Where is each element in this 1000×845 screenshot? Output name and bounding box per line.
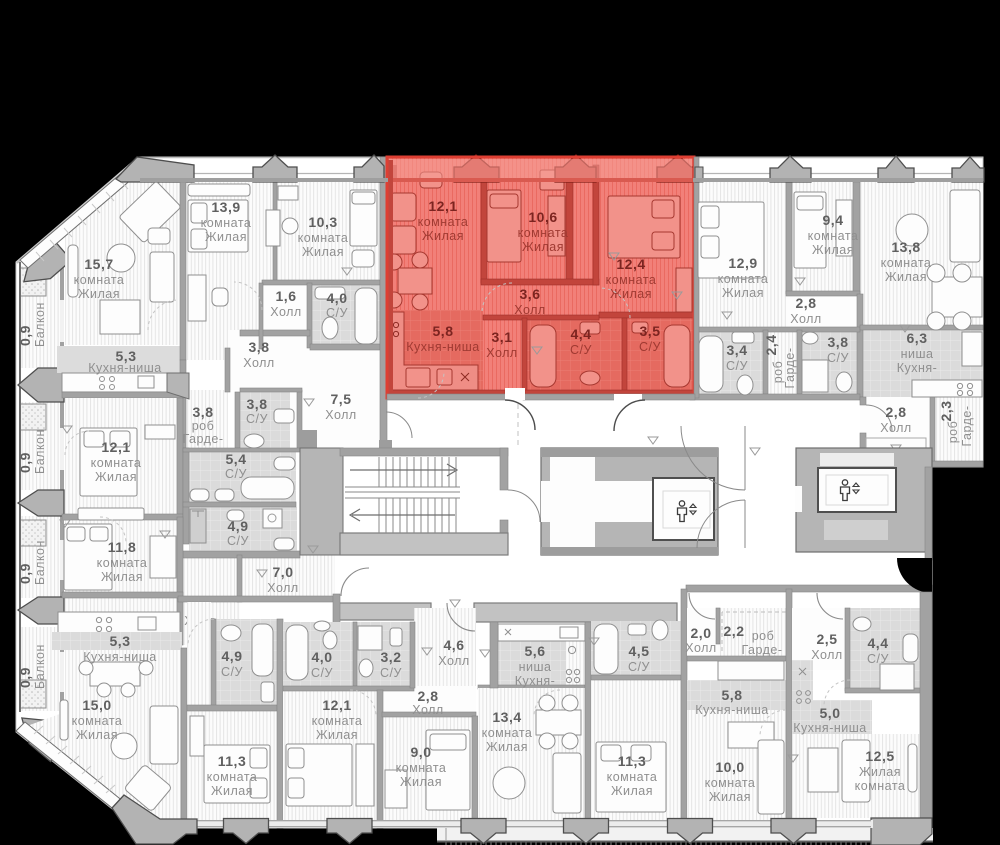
svg-text:2,3: 2,3 xyxy=(938,401,954,422)
svg-text:3,8: 3,8 xyxy=(247,396,268,412)
svg-text:2,8: 2,8 xyxy=(418,688,439,704)
svg-text:комната: комната xyxy=(72,714,123,728)
svg-text:Балкон: Балкон xyxy=(33,429,47,474)
svg-text:Кухня-ниша: Кухня-ниша xyxy=(406,340,479,354)
svg-text:комната: комната xyxy=(74,273,125,287)
svg-text:3,8: 3,8 xyxy=(193,404,214,420)
svg-text:4,9: 4,9 xyxy=(228,518,249,534)
svg-text:12,1: 12,1 xyxy=(101,439,130,455)
svg-text:5,0: 5,0 xyxy=(820,705,841,721)
svg-text:Кухня-ниша: Кухня-ниша xyxy=(695,703,768,717)
svg-text:5,4: 5,4 xyxy=(226,451,247,467)
svg-text:3,2: 3,2 xyxy=(381,649,402,665)
svg-text:ниша: ниша xyxy=(901,347,934,361)
svg-text:Кухня-ниша: Кухня-ниша xyxy=(83,650,156,664)
svg-text:Жилая: Жилая xyxy=(522,240,564,254)
svg-text:2,4: 2,4 xyxy=(763,335,779,356)
svg-text:Холл: Холл xyxy=(790,312,821,326)
svg-text:4,0: 4,0 xyxy=(312,649,333,665)
svg-text:Холл: Холл xyxy=(514,303,545,317)
svg-text:Балкон: Балкон xyxy=(33,302,47,347)
svg-text:7,0: 7,0 xyxy=(273,564,294,580)
svg-text:ниша: ниша xyxy=(519,660,552,674)
svg-text:комната: комната xyxy=(606,273,657,287)
svg-text:комната: комната xyxy=(705,776,756,790)
svg-text:комната: комната xyxy=(482,726,533,740)
svg-text:Жилая: Жилая xyxy=(316,728,358,742)
svg-text:2,8: 2,8 xyxy=(886,404,907,420)
svg-text:Жилая: Жилая xyxy=(101,570,143,584)
svg-text:12,5: 12,5 xyxy=(865,748,894,764)
svg-text:Жилая: Жилая xyxy=(422,229,464,243)
svg-text:комната: комната xyxy=(518,226,569,240)
svg-text:Холл: Холл xyxy=(486,346,517,360)
svg-text:Жилая: Жилая xyxy=(76,728,118,742)
svg-text:комната: комната xyxy=(298,231,349,245)
svg-text:13,8: 13,8 xyxy=(891,239,920,255)
svg-text:12,1: 12,1 xyxy=(428,198,457,214)
svg-text:Кухня-ниша: Кухня-ниша xyxy=(88,361,161,375)
svg-text:12,9: 12,9 xyxy=(728,255,757,271)
svg-text:Жилая: Жилая xyxy=(812,243,854,257)
svg-text:С/У: С/У xyxy=(827,351,849,365)
svg-text:комната: комната xyxy=(855,779,906,793)
svg-text:С/У: С/У xyxy=(227,534,249,548)
svg-text:3,4: 3,4 xyxy=(727,342,748,358)
svg-text:2,2: 2,2 xyxy=(724,623,745,639)
svg-text:Жилая: Жилая xyxy=(610,287,652,301)
svg-text:2,5: 2,5 xyxy=(817,631,838,647)
svg-text:роб: роб xyxy=(192,419,215,433)
svg-text:С/У: С/У xyxy=(639,340,661,354)
svg-text:11,3: 11,3 xyxy=(218,753,246,769)
svg-text:3,5: 3,5 xyxy=(640,323,661,339)
svg-text:С/У: С/У xyxy=(867,652,889,666)
svg-text:10,6: 10,6 xyxy=(528,209,557,225)
svg-text:10,3: 10,3 xyxy=(308,214,337,230)
svg-text:комната: комната xyxy=(418,215,469,229)
svg-text:3,1: 3,1 xyxy=(492,329,513,345)
svg-text:Жилая: Жилая xyxy=(95,470,137,484)
svg-text:10,0: 10,0 xyxy=(715,759,744,775)
svg-text:3,6: 3,6 xyxy=(520,286,541,302)
svg-text:комната: комната xyxy=(201,216,252,230)
svg-text:15,7: 15,7 xyxy=(84,256,113,272)
svg-text:Гарде-: Гарде- xyxy=(783,347,797,388)
svg-text:11,3: 11,3 xyxy=(618,753,646,769)
svg-text:С/У: С/У xyxy=(628,660,650,674)
svg-text:роб: роб xyxy=(752,629,775,643)
svg-text:Холл: Холл xyxy=(880,421,911,435)
svg-text:Холл: Холл xyxy=(325,408,356,422)
svg-text:комната: комната xyxy=(881,256,932,270)
svg-text:С/У: С/У xyxy=(726,359,748,373)
svg-text:комната: комната xyxy=(97,556,148,570)
svg-text:С/У: С/У xyxy=(570,343,592,357)
svg-text:7,5: 7,5 xyxy=(331,391,352,407)
svg-text:12,1: 12,1 xyxy=(322,697,351,713)
svg-text:0,9: 0,9 xyxy=(17,667,33,688)
svg-text:комната: комната xyxy=(207,770,258,784)
svg-text:Жилая: Жилая xyxy=(709,790,751,804)
svg-text:15,0: 15,0 xyxy=(82,697,111,713)
svg-text:4,4: 4,4 xyxy=(571,326,592,342)
svg-text:Кухня-ниша: Кухня-ниша xyxy=(793,721,866,735)
svg-text:Жилая: Жилая xyxy=(400,775,442,789)
svg-text:0,9: 0,9 xyxy=(17,563,33,584)
svg-text:5,6: 5,6 xyxy=(525,643,546,659)
svg-text:9,0: 9,0 xyxy=(411,744,432,760)
svg-text:5,3: 5,3 xyxy=(110,633,131,649)
svg-text:роб: роб xyxy=(946,421,960,444)
svg-text:Холл: Холл xyxy=(438,654,469,668)
svg-text:Кухня-: Кухня- xyxy=(897,361,938,375)
svg-text:Гарде-: Гарде- xyxy=(741,643,782,657)
svg-text:С/У: С/У xyxy=(221,665,243,679)
svg-text:С/У: С/У xyxy=(326,306,348,320)
svg-text:0,9: 0,9 xyxy=(17,452,33,473)
svg-text:11,8: 11,8 xyxy=(108,539,136,555)
svg-text:5,8: 5,8 xyxy=(433,323,454,339)
svg-text:Холл: Холл xyxy=(685,641,716,655)
svg-text:комната: комната xyxy=(396,761,447,775)
svg-text:9,4: 9,4 xyxy=(823,212,844,228)
svg-text:комната: комната xyxy=(91,456,142,470)
svg-text:1,6: 1,6 xyxy=(276,288,297,304)
svg-text:С/У: С/У xyxy=(225,467,247,481)
svg-text:4,9: 4,9 xyxy=(222,648,243,664)
svg-text:комната: комната xyxy=(808,229,859,243)
svg-text:13,4: 13,4 xyxy=(492,709,521,725)
svg-text:2,0: 2,0 xyxy=(691,625,712,641)
svg-text:5,8: 5,8 xyxy=(722,687,743,703)
svg-text:Жилая: Жилая xyxy=(78,287,120,301)
svg-text:Жилая: Жилая xyxy=(722,286,764,300)
svg-text:Жилая: Жилая xyxy=(205,230,247,244)
svg-text:3,8: 3,8 xyxy=(828,334,849,350)
svg-text:4,0: 4,0 xyxy=(327,290,348,306)
svg-text:Жилая: Жилая xyxy=(486,740,528,754)
svg-text:Холл: Холл xyxy=(811,648,842,662)
svg-text:4,4: 4,4 xyxy=(868,635,889,651)
svg-text:Холл: Холл xyxy=(267,581,298,595)
svg-text:Жилая: Жилая xyxy=(611,784,653,798)
svg-text:12,4: 12,4 xyxy=(616,256,645,272)
svg-text:комната: комната xyxy=(312,714,363,728)
svg-text:3,8: 3,8 xyxy=(249,339,270,355)
svg-text:комната: комната xyxy=(718,272,769,286)
svg-text:С/У: С/У xyxy=(380,666,402,680)
svg-text:Жилая: Жилая xyxy=(302,245,344,259)
svg-text:0,9: 0,9 xyxy=(17,325,33,346)
svg-text:Жилая: Жилая xyxy=(859,765,901,779)
svg-text:Холл: Холл xyxy=(412,703,443,717)
svg-text:Жилая: Жилая xyxy=(211,784,253,798)
svg-text:Балкон: Балкон xyxy=(33,540,47,585)
svg-text:4,6: 4,6 xyxy=(444,637,465,653)
svg-text:Балкон: Балкон xyxy=(33,644,47,689)
svg-text:комната: комната xyxy=(607,770,658,784)
svg-text:С/У: С/У xyxy=(246,412,268,426)
svg-text:6,3: 6,3 xyxy=(907,330,928,346)
svg-text:13,9: 13,9 xyxy=(211,199,240,215)
svg-text:Жилая: Жилая xyxy=(885,270,927,284)
svg-text:Холл: Холл xyxy=(270,305,301,319)
svg-text:С/У: С/У xyxy=(311,666,333,680)
svg-text:Гарде-: Гарде- xyxy=(182,432,223,446)
svg-text:Холл: Холл xyxy=(243,356,274,370)
svg-text:Гарде-: Гарде- xyxy=(960,405,974,446)
svg-text:Кухня-: Кухня- xyxy=(515,674,556,688)
svg-text:2,8: 2,8 xyxy=(796,295,817,311)
svg-text:4,5: 4,5 xyxy=(629,643,650,659)
